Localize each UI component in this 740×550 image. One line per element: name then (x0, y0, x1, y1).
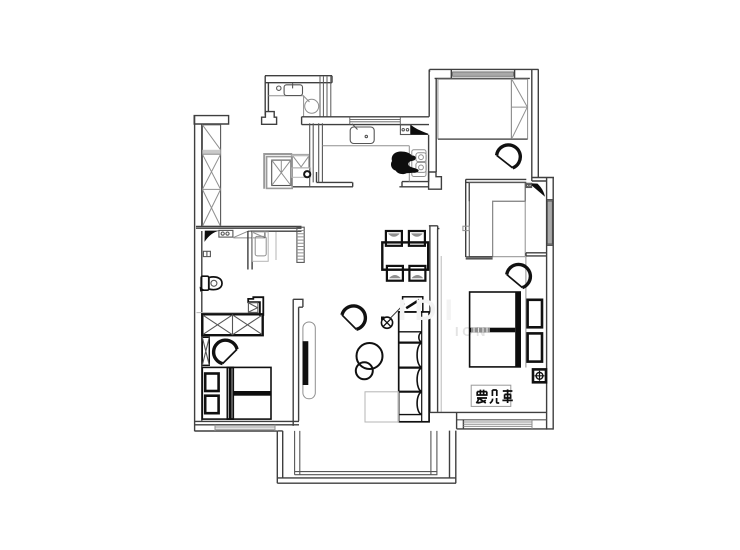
svg-text:I D I: I D I (398, 294, 453, 327)
